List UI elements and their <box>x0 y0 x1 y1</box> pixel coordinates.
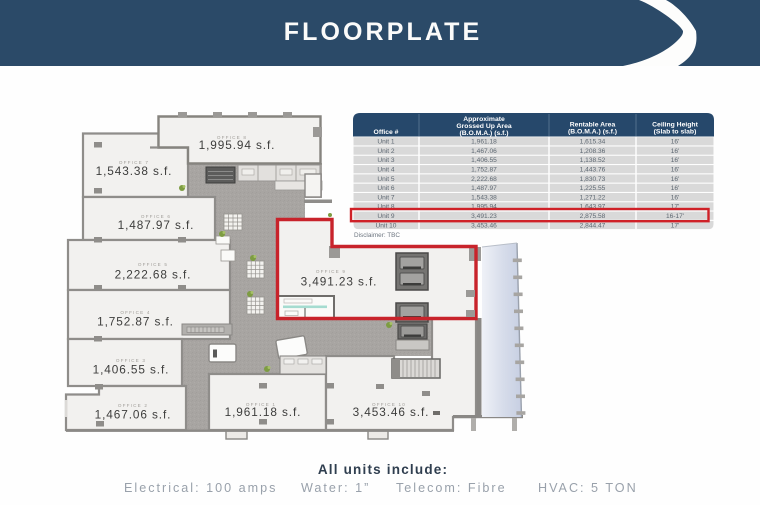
svg-text:Rentable Area: Rentable Area <box>570 122 616 129</box>
svg-text:1,225.55: 1,225.55 <box>580 185 606 192</box>
svg-text:Office #: Office # <box>374 129 399 136</box>
svg-text:Grossed Up Area: Grossed Up Area <box>456 123 511 130</box>
svg-text:2,875.58: 2,875.58 <box>580 213 606 220</box>
svg-text:1,752.87: 1,752.87 <box>471 167 497 174</box>
svg-text:16': 16' <box>671 157 680 164</box>
svg-text:1,271.22: 1,271.22 <box>580 194 606 201</box>
svg-text:Unit 4: Unit 4 <box>377 167 395 174</box>
svg-text:1,961.18 s.f.: 1,961.18 s.f. <box>225 405 302 419</box>
svg-text:2,222.68: 2,222.68 <box>471 176 497 183</box>
svg-text:3,491.23: 3,491.23 <box>471 213 497 220</box>
svg-text:1,615.34: 1,615.34 <box>580 139 606 146</box>
svg-text:1,961.18: 1,961.18 <box>471 139 497 146</box>
svg-text:OFFICE 9: OFFICE 9 <box>316 269 346 274</box>
svg-text:17': 17' <box>671 222 680 229</box>
svg-text:16': 16' <box>671 167 680 174</box>
svg-text:(B.O.M.A.) (s.f.): (B.O.M.A.) (s.f.) <box>459 130 508 137</box>
svg-text:1,467.06: 1,467.06 <box>471 148 497 155</box>
svg-text:1,138.52: 1,138.52 <box>580 157 606 164</box>
svg-text:Unit 6: Unit 6 <box>377 185 395 192</box>
svg-text:16': 16' <box>671 148 680 155</box>
svg-text:16': 16' <box>671 139 680 146</box>
svg-text:Ceiling Height: Ceiling Height <box>652 122 698 129</box>
svg-text:Water: 1”: Water: 1” <box>301 481 370 495</box>
svg-text:3,491.23 s.f.: 3,491.23 s.f. <box>301 275 378 289</box>
svg-text:1,830.73: 1,830.73 <box>580 176 606 183</box>
svg-text:16': 16' <box>671 194 680 201</box>
svg-text:Unit 2: Unit 2 <box>377 148 395 155</box>
svg-text:16': 16' <box>671 185 680 192</box>
svg-text:Unit 9: Unit 9 <box>377 213 395 220</box>
svg-text:1,543.38 s.f.: 1,543.38 s.f. <box>96 164 173 178</box>
svg-text:All units include:: All units include: <box>318 462 448 477</box>
svg-text:1,487.97 s.f.: 1,487.97 s.f. <box>118 218 195 232</box>
svg-text:Unit 7: Unit 7 <box>377 194 395 201</box>
svg-text:Unit 1: Unit 1 <box>377 139 395 146</box>
svg-text:1,467.06 s.f.: 1,467.06 s.f. <box>95 408 172 422</box>
svg-text:1,406.55: 1,406.55 <box>471 157 497 164</box>
svg-text:HVAC: 5 TON: HVAC: 5 TON <box>538 481 638 495</box>
svg-text:1,543.38: 1,543.38 <box>471 194 497 201</box>
svg-text:1,208.36: 1,208.36 <box>580 148 606 155</box>
svg-text:1,406.55 s.f.: 1,406.55 s.f. <box>93 363 170 377</box>
svg-text:FLOORPLATE: FLOORPLATE <box>284 18 483 46</box>
svg-text:Telecom: Fibre: Telecom: Fibre <box>396 481 507 495</box>
svg-text:Unit 5: Unit 5 <box>377 176 395 183</box>
svg-text:1,995.94 s.f.: 1,995.94 s.f. <box>199 138 276 152</box>
svg-text:Unit 10: Unit 10 <box>376 222 397 229</box>
svg-text:Approximate: Approximate <box>463 116 505 123</box>
svg-text:Disclaimer: TBC: Disclaimer: TBC <box>354 232 400 239</box>
svg-text:Electrical: 100 amps: Electrical: 100 amps <box>124 481 277 495</box>
svg-text:2,844.47: 2,844.47 <box>580 222 606 229</box>
svg-text:3,453.46: 3,453.46 <box>471 222 497 229</box>
svg-text:1,443.76: 1,443.76 <box>580 167 606 174</box>
svg-text:OFFICE 5: OFFICE 5 <box>138 262 168 267</box>
svg-text:16': 16' <box>671 176 680 183</box>
svg-text:1,487.97: 1,487.97 <box>471 185 497 192</box>
svg-text:3,453.46 s.f.: 3,453.46 s.f. <box>353 405 430 419</box>
svg-text:16-17': 16-17' <box>666 213 684 220</box>
svg-text:1,752.87 s.f.: 1,752.87 s.f. <box>97 315 174 329</box>
svg-text:(Slab to slab): (Slab to slab) <box>654 129 697 136</box>
svg-text:Unit 3: Unit 3 <box>377 157 395 164</box>
svg-text:2,222.68 s.f.: 2,222.68 s.f. <box>115 268 192 282</box>
svg-text:(B.O.M.A.) (s.f.): (B.O.M.A.) (s.f.) <box>568 129 617 136</box>
